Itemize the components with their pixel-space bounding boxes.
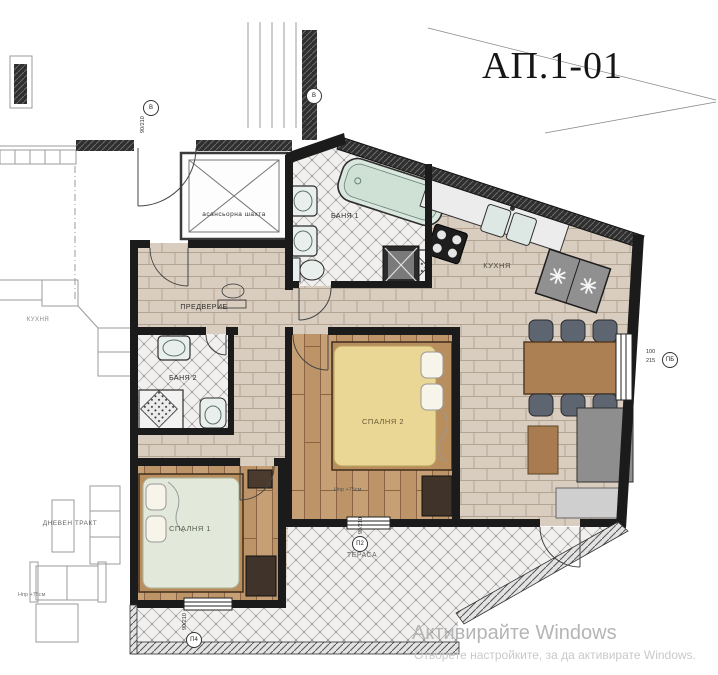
floor-plan-page: АП.1-01 асансьорна шахта ПРЕДВЕРИЕ БАНЯ … bbox=[0, 0, 718, 675]
staircase-up-lines bbox=[248, 22, 296, 128]
parapet-left bbox=[130, 605, 137, 654]
right-window-height: 215 bbox=[646, 358, 655, 364]
neighbor-label-living: ДНЕВЕН ТРАКТ bbox=[43, 520, 98, 527]
bath1-toilet bbox=[290, 258, 324, 282]
kitchen-appliance bbox=[383, 246, 419, 284]
entry-door-tag: В bbox=[143, 100, 159, 116]
right-window-width: 100 bbox=[646, 349, 655, 355]
parapet-note-2: Нпр +75см bbox=[18, 592, 45, 598]
bed-1 bbox=[139, 474, 243, 592]
plan-title: АП.1-01 bbox=[482, 44, 623, 88]
terrace-door-size: 90/210 bbox=[358, 517, 364, 534]
windows-activation-watermark-title: Активирайте Windows bbox=[412, 622, 617, 645]
room-label-elevator: асансьорна шахта bbox=[202, 211, 265, 218]
room-label-terrace: ТЕРАСА bbox=[347, 552, 377, 559]
room-label-hall: ПРЕДВЕРИЕ bbox=[180, 304, 227, 311]
room-label-bedroom2: СПАЛНЯ 2 bbox=[362, 417, 404, 426]
room-label-kitchen: КУХНЯ bbox=[483, 261, 511, 270]
room-label-bath2: БАНЯ 2 bbox=[169, 375, 197, 382]
neighbor-label-kitchen: КУХНЯ bbox=[27, 317, 50, 323]
floor-plan-drawing bbox=[0, 0, 718, 675]
cabinet bbox=[528, 426, 558, 474]
bath2-shower bbox=[139, 390, 183, 433]
bedroom1-window-size: 90/210 bbox=[182, 613, 188, 630]
bath2-sink bbox=[158, 336, 190, 360]
parapet-bottom bbox=[133, 642, 459, 654]
right-window-tag: ПБ bbox=[662, 352, 678, 368]
bedroom1-window-tag: П4 bbox=[186, 632, 202, 648]
dining-set bbox=[524, 320, 622, 416]
entry-door-size: 90/210 bbox=[140, 116, 146, 133]
stair-door-size: 90/210 bbox=[303, 113, 309, 130]
room-label-bath1: БАНЯ 1 bbox=[331, 213, 359, 220]
windows-activation-watermark-subtitle: Отворете настройките, за да активирате W… bbox=[414, 648, 696, 662]
wardrobe-1 bbox=[246, 556, 276, 596]
room-label-bedroom1: СПАЛНЯ 1 bbox=[169, 524, 211, 533]
bed-2 bbox=[332, 342, 452, 470]
bench bbox=[556, 488, 622, 518]
stair-door-tag: В bbox=[306, 88, 322, 104]
bath2-toilet bbox=[200, 398, 226, 428]
parapet-note-1: Нпр +75см bbox=[334, 487, 361, 493]
wardrobe-2 bbox=[422, 476, 452, 516]
terrace-door-tag: П2 bbox=[352, 536, 368, 552]
elevator-shaft bbox=[181, 153, 287, 239]
